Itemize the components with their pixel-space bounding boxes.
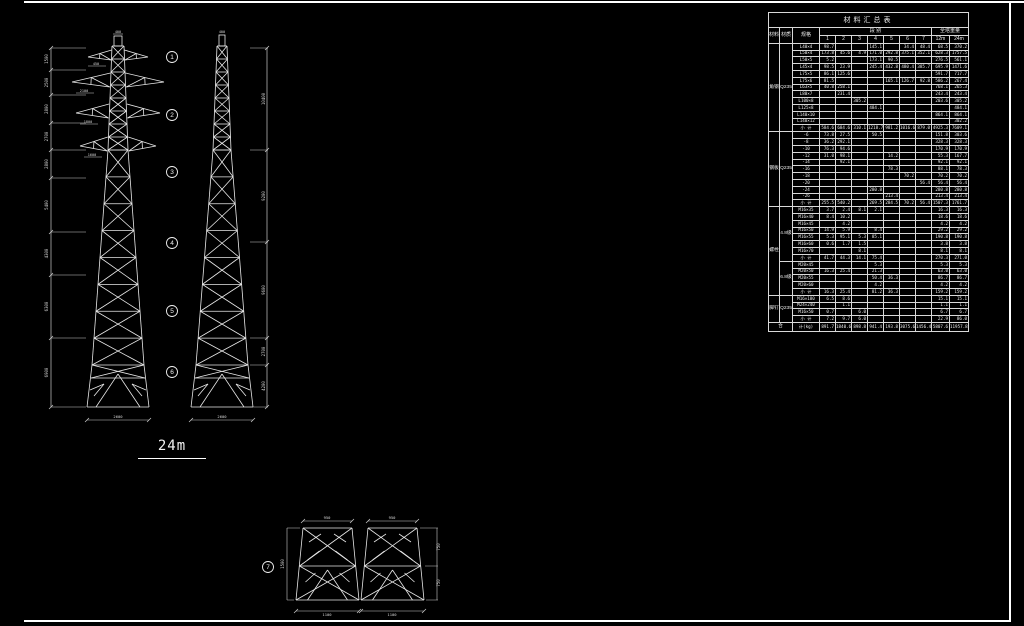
value-cell bbox=[868, 302, 884, 309]
value-cell: 7609.1 bbox=[950, 125, 969, 132]
spec-cell: L125×8 bbox=[793, 105, 820, 112]
value-cell bbox=[916, 91, 932, 98]
value-cell bbox=[884, 84, 900, 91]
leg-detail-marker: 7 bbox=[263, 562, 274, 573]
table-row: M20×5550.436.386.786.7 bbox=[769, 275, 969, 282]
value-cell bbox=[900, 145, 916, 152]
value-cell bbox=[852, 288, 868, 295]
value-cell: 6.7 bbox=[950, 309, 969, 316]
value-cell: 86.7 bbox=[950, 275, 969, 282]
value-cell bbox=[836, 166, 852, 173]
value-cell bbox=[852, 227, 868, 234]
value-cell bbox=[836, 98, 852, 105]
value-cell bbox=[884, 248, 900, 255]
value-cell: 1.1 bbox=[950, 302, 969, 309]
spec-cell: -8 bbox=[793, 139, 820, 146]
value-cell: 628.3 bbox=[932, 50, 950, 57]
value-cell bbox=[900, 159, 916, 166]
value-cell: 284.5 bbox=[884, 200, 900, 207]
value-cell bbox=[884, 254, 900, 261]
value-cell bbox=[820, 118, 836, 125]
material-summary-table: 材料汇总表材料材质规格段 别全塔重量123456712m24m角钢Q235L40… bbox=[768, 12, 968, 332]
value-cell bbox=[932, 105, 950, 112]
value-cell: 56.4 bbox=[950, 179, 969, 186]
spec-cell: -24 bbox=[793, 186, 820, 193]
table-row: -1492.192.192.1 bbox=[769, 159, 969, 166]
value-cell bbox=[884, 316, 900, 323]
value-cell: 25.4 bbox=[836, 268, 852, 275]
value-cell bbox=[884, 118, 900, 125]
value-cell bbox=[916, 152, 932, 159]
svg-text:1500: 1500 bbox=[44, 54, 49, 64]
value-cell bbox=[820, 302, 836, 309]
value-cell: 165.1 bbox=[884, 77, 900, 84]
grade-label: Q235 bbox=[780, 295, 793, 322]
value-cell bbox=[884, 111, 900, 118]
svg-text:2600: 2600 bbox=[113, 414, 123, 419]
value-cell: 213.4 bbox=[884, 193, 900, 200]
value-cell: 1.5 bbox=[852, 241, 868, 248]
value-cell: 70.2 bbox=[900, 200, 916, 207]
value-cell: 484.1 bbox=[950, 105, 969, 112]
spec-cell: M16×35 bbox=[793, 207, 820, 214]
value-cell: 4.2 bbox=[932, 220, 950, 227]
value-cell: 9.7 bbox=[836, 316, 852, 323]
value-cell bbox=[836, 193, 852, 200]
spec-cell: M16×55 bbox=[793, 234, 820, 241]
section-marker: 3 bbox=[167, 167, 178, 178]
value-cell bbox=[900, 288, 916, 295]
value-cell: 768.1 bbox=[932, 84, 950, 91]
value-cell bbox=[916, 234, 932, 241]
value-cell: 0.7 bbox=[820, 309, 836, 316]
section-marker: 6 bbox=[167, 367, 178, 378]
svg-text:400: 400 bbox=[219, 30, 225, 34]
svg-text:6900: 6900 bbox=[44, 367, 49, 377]
table-row: M16×5014.95.98.429.229.2 bbox=[769, 227, 969, 234]
spec-cell: M16×50 bbox=[793, 227, 820, 234]
value-cell: 8.1 bbox=[950, 248, 969, 255]
value-cell bbox=[852, 268, 868, 275]
svg-text:4200: 4200 bbox=[261, 381, 266, 391]
table-row: M16×500.76.06.76.7 bbox=[769, 309, 969, 316]
value-cell bbox=[820, 275, 836, 282]
material-table-grid: 材料汇总表材料材质规格段 别全塔重量123456712m24m角钢Q235L40… bbox=[768, 12, 969, 332]
value-cell bbox=[900, 186, 916, 193]
table-header-row: 材料材质规格段 别全塔重量 bbox=[769, 28, 969, 36]
table-row: M16×408.410.218.618.6 bbox=[769, 214, 969, 221]
value-cell bbox=[852, 159, 868, 166]
value-cell bbox=[820, 111, 836, 118]
value-cell: 190.8 bbox=[950, 234, 969, 241]
value-cell: 34.4 bbox=[900, 43, 916, 50]
value-cell bbox=[852, 111, 868, 118]
value-cell: 23.9 bbox=[836, 64, 852, 71]
value-cell: 484.1 bbox=[868, 105, 884, 112]
value-cell: 561.1 bbox=[950, 57, 969, 64]
value-cell: 190.8 bbox=[932, 234, 950, 241]
spec-cell: M20×60 bbox=[793, 282, 820, 289]
value-cell: 3.7 bbox=[820, 207, 836, 214]
spec-cell: M16×45 bbox=[793, 220, 820, 227]
value-cell: 1757.5 bbox=[950, 50, 969, 57]
value-cell: 231.4 bbox=[836, 91, 852, 98]
value-cell: 879.0 bbox=[916, 125, 932, 132]
spec-cell: -16 bbox=[793, 166, 820, 173]
value-cell: 5.2 bbox=[820, 57, 836, 64]
grade-label: Q235 bbox=[780, 132, 793, 207]
svg-text:2700: 2700 bbox=[44, 131, 49, 141]
value-cell: 3.8 bbox=[932, 241, 950, 248]
value-cell: 8.4 bbox=[868, 227, 884, 234]
svg-text:2: 2 bbox=[170, 112, 174, 119]
value-cell bbox=[836, 282, 852, 289]
value-cell bbox=[836, 186, 852, 193]
value-cell: 370.2 bbox=[950, 43, 969, 50]
value-cell: 78.3 bbox=[884, 166, 900, 173]
value-cell bbox=[852, 261, 868, 268]
svg-text:450: 450 bbox=[93, 62, 99, 66]
value-cell bbox=[900, 261, 916, 268]
value-cell: 16.3 bbox=[820, 268, 836, 275]
value-cell bbox=[916, 159, 932, 166]
value-cell: 170.9 bbox=[950, 145, 969, 152]
value-cell: 385.7 bbox=[916, 64, 932, 71]
value-cell bbox=[900, 57, 916, 64]
spec-cell: -14 bbox=[793, 159, 820, 166]
table-row: 小 计41.744.314.175.4270.3271.0 bbox=[769, 254, 969, 261]
value-cell: 167.7 bbox=[950, 152, 969, 159]
svg-text:1800: 1800 bbox=[84, 120, 92, 124]
svg-text:6: 6 bbox=[170, 369, 174, 376]
value-cell: 16.3 bbox=[820, 288, 836, 295]
value-cell bbox=[868, 179, 884, 186]
value-cell bbox=[868, 316, 884, 323]
value-cell: 0.6 bbox=[820, 241, 836, 248]
value-cell: 8.6 bbox=[836, 295, 852, 302]
value-cell bbox=[900, 111, 916, 118]
value-cell bbox=[820, 282, 836, 289]
value-cell: 292.8 bbox=[884, 50, 900, 57]
value-cell: 171.0 bbox=[868, 50, 884, 57]
value-cell: 5.3 bbox=[852, 234, 868, 241]
value-cell bbox=[852, 295, 868, 302]
value-cell bbox=[884, 295, 900, 302]
value-cell: 73.8 bbox=[820, 132, 836, 139]
value-cell bbox=[900, 268, 916, 275]
value-cell: 265.3 bbox=[950, 84, 969, 91]
value-cell bbox=[868, 241, 884, 248]
value-cell: 63.0 bbox=[950, 268, 969, 275]
value-cell bbox=[916, 220, 932, 227]
value-cell bbox=[852, 186, 868, 193]
value-cell bbox=[868, 139, 884, 146]
value-cell: 85.1 bbox=[868, 234, 884, 241]
value-cell: 267.4 bbox=[950, 77, 969, 84]
value-cell: 18.6 bbox=[932, 214, 950, 221]
value-cell: 56.4 bbox=[916, 179, 932, 186]
value-cell bbox=[916, 288, 932, 295]
value-cell: 8.1 bbox=[932, 248, 950, 255]
table-row: 脚钉Q235M16×1806.58.615.115.1 bbox=[769, 295, 969, 302]
value-cell bbox=[884, 214, 900, 221]
svg-text:1500: 1500 bbox=[280, 559, 285, 569]
value-cell bbox=[884, 43, 900, 50]
value-cell bbox=[884, 227, 900, 234]
table-row: L125×8484.1484.1 bbox=[769, 105, 969, 112]
value-cell: 159.2 bbox=[932, 288, 950, 295]
value-cell bbox=[884, 241, 900, 248]
value-cell bbox=[900, 214, 916, 221]
value-cell bbox=[820, 105, 836, 112]
value-cell: 375.1 bbox=[900, 50, 916, 57]
value-cell: 270.3 bbox=[932, 254, 950, 261]
svg-text:5400: 5400 bbox=[44, 200, 49, 210]
value-cell bbox=[820, 179, 836, 186]
value-cell: 36.3 bbox=[884, 275, 900, 282]
value-cell bbox=[884, 145, 900, 152]
value-cell bbox=[884, 98, 900, 105]
value-cell bbox=[836, 275, 852, 282]
value-cell: 98.1 bbox=[836, 152, 852, 159]
value-cell: 203.6 bbox=[932, 98, 950, 105]
spec-cell: L75×5 bbox=[793, 70, 820, 77]
value-cell bbox=[852, 275, 868, 282]
table-row: 小 计7.29.76.022.986.0 bbox=[769, 316, 969, 323]
svg-text:1: 1 bbox=[170, 54, 174, 61]
value-cell: 16.3 bbox=[932, 207, 950, 214]
table-row: -24280.8280.8280.8 bbox=[769, 186, 969, 193]
value-cell: 5.3 bbox=[820, 234, 836, 241]
table-row: M24×2401.11.11.1 bbox=[769, 302, 969, 309]
material-group-label: 螺栓 bbox=[769, 207, 780, 296]
value-cell: 255.5 bbox=[820, 200, 836, 207]
value-cell bbox=[852, 70, 868, 77]
table-row: M20×604.24.24.2 bbox=[769, 282, 969, 289]
spec-cell: 小 计 bbox=[793, 316, 820, 323]
value-cell bbox=[900, 254, 916, 261]
svg-text:1100: 1100 bbox=[387, 612, 397, 617]
value-cell: 88.1 bbox=[932, 166, 950, 173]
value-cell: 95.1 bbox=[836, 234, 852, 241]
value-cell bbox=[868, 70, 884, 77]
value-cell: 90.5 bbox=[884, 57, 900, 64]
value-cell: 27.5 bbox=[836, 132, 852, 139]
value-cell bbox=[916, 139, 932, 146]
value-cell: 303.6 bbox=[950, 132, 969, 139]
value-cell: 40.8 bbox=[820, 84, 836, 91]
value-cell bbox=[836, 43, 852, 50]
table-row: -1231.098.114.255.3167.7 bbox=[769, 152, 969, 159]
value-cell: 591.7 bbox=[932, 70, 950, 77]
value-cell bbox=[916, 118, 932, 125]
table-row: L140×10864.1864.1 bbox=[769, 111, 969, 118]
value-cell: 305.2 bbox=[852, 98, 868, 105]
value-cell bbox=[884, 139, 900, 146]
spec-cell: 小 计 bbox=[793, 254, 820, 261]
svg-text:1600: 1600 bbox=[88, 153, 96, 157]
value-cell bbox=[868, 118, 884, 125]
value-cell: 4.2 bbox=[932, 282, 950, 289]
value-cell bbox=[916, 145, 932, 152]
svg-text:4: 4 bbox=[170, 240, 174, 247]
svg-text:2500: 2500 bbox=[44, 77, 49, 87]
spec-cell: M20×45 bbox=[793, 261, 820, 268]
spec-cell: 小 计 bbox=[793, 125, 820, 132]
value-cell: 302.2 bbox=[950, 118, 969, 125]
value-cell bbox=[852, 200, 868, 207]
svg-text:6300: 6300 bbox=[44, 301, 49, 311]
value-cell bbox=[852, 132, 868, 139]
value-cell: 41.7 bbox=[820, 254, 836, 261]
value-cell: 125.6 bbox=[836, 70, 852, 77]
value-cell bbox=[916, 254, 932, 261]
value-cell bbox=[916, 193, 932, 200]
value-cell bbox=[836, 77, 852, 84]
value-cell: 173.8 bbox=[820, 50, 836, 57]
value-cell bbox=[884, 105, 900, 112]
value-cell: 78.3 bbox=[950, 166, 969, 173]
value-cell: 31.0 bbox=[820, 152, 836, 159]
value-cell: 864.1 bbox=[932, 111, 950, 118]
value-cell: 4925.3 bbox=[932, 125, 950, 132]
value-cell: 213.4 bbox=[950, 193, 969, 200]
value-cell bbox=[916, 84, 932, 91]
value-cell: 81.2 bbox=[868, 288, 884, 295]
value-cell bbox=[884, 282, 900, 289]
value-cell: 8.1 bbox=[852, 207, 868, 214]
grade-label: 6.8级 bbox=[780, 261, 793, 295]
svg-text:400: 400 bbox=[115, 30, 121, 34]
value-cell: 586.2 bbox=[932, 77, 950, 84]
value-cell: 70.2 bbox=[900, 173, 916, 180]
spec-cell: L63×5 bbox=[793, 84, 820, 91]
value-cell: 213.4 bbox=[932, 193, 950, 200]
svg-text:2800: 2800 bbox=[44, 159, 49, 169]
value-cell: 2.1 bbox=[868, 207, 884, 214]
value-cell bbox=[868, 309, 884, 316]
value-cell bbox=[820, 193, 836, 200]
value-cell: 92.1 bbox=[950, 159, 969, 166]
value-cell: 269.5 bbox=[868, 200, 884, 207]
value-cell bbox=[852, 139, 868, 146]
value-cell bbox=[900, 84, 916, 91]
value-cell: 3.8 bbox=[950, 241, 969, 248]
value-cell: 243.4 bbox=[932, 91, 950, 98]
spec-cell: -20 bbox=[793, 179, 820, 186]
value-cell: 15.1 bbox=[932, 295, 950, 302]
value-cell bbox=[884, 234, 900, 241]
value-cell bbox=[852, 43, 868, 50]
value-cell bbox=[916, 132, 932, 139]
table-row: L75×681.5165.1126.792.8586.2267.4 bbox=[769, 77, 969, 84]
value-cell: 695.9 bbox=[932, 64, 950, 71]
value-cell: 4.2 bbox=[950, 220, 969, 227]
value-cell: 151.8 bbox=[932, 132, 950, 139]
table-row: -1870.270.270.2 bbox=[769, 173, 969, 180]
value-cell bbox=[884, 220, 900, 227]
value-cell bbox=[900, 241, 916, 248]
table-row: -1076.394.6170.9170.9 bbox=[769, 145, 969, 152]
value-cell: 280.8 bbox=[950, 186, 969, 193]
svg-text:2800: 2800 bbox=[44, 104, 49, 114]
value-cell: 86.7 bbox=[932, 275, 950, 282]
value-cell: 92.1 bbox=[836, 159, 852, 166]
table-row: 螺栓4.8级M16×353.72.48.12.116.316.3 bbox=[769, 207, 969, 214]
value-cell: 14.2 bbox=[884, 152, 900, 159]
value-cell: 126.7 bbox=[900, 77, 916, 84]
value-cell: 145.1 bbox=[868, 43, 884, 50]
value-cell: 717.7 bbox=[950, 70, 969, 77]
value-cell: 21.3 bbox=[868, 268, 884, 275]
value-cell: 25.4 bbox=[836, 288, 852, 295]
svg-text:7: 7 bbox=[266, 564, 270, 571]
table-row: M16×454.24.24.2 bbox=[769, 220, 969, 227]
value-cell: 280.8 bbox=[932, 186, 950, 193]
value-cell: 280.8 bbox=[868, 186, 884, 193]
value-cell bbox=[868, 214, 884, 221]
value-cell bbox=[916, 186, 932, 193]
value-cell bbox=[900, 98, 916, 105]
value-cell bbox=[900, 295, 916, 302]
table-row: M20×5016.325.421.363.063.0 bbox=[769, 268, 969, 275]
value-cell bbox=[836, 105, 852, 112]
value-cell bbox=[836, 179, 852, 186]
svg-text:2700: 2700 bbox=[261, 346, 266, 356]
value-cell: 10.2 bbox=[836, 214, 852, 221]
table-row: L75×586.1125.6591.7717.7 bbox=[769, 70, 969, 77]
value-cell bbox=[884, 268, 900, 275]
value-cell: 1218.7 bbox=[868, 125, 884, 132]
section-marker: 5 bbox=[167, 306, 178, 317]
table-row: M16×555.395.15.385.1190.8190.8 bbox=[769, 234, 969, 241]
value-cell bbox=[884, 302, 900, 309]
table-row: -1678.388.178.3 bbox=[769, 166, 969, 173]
value-cell bbox=[884, 186, 900, 193]
value-cell bbox=[916, 261, 932, 268]
value-cell: 68.5 bbox=[932, 43, 950, 50]
spec-cell: -12 bbox=[793, 152, 820, 159]
value-cell: 44.3 bbox=[836, 254, 852, 261]
value-cell bbox=[820, 248, 836, 255]
value-cell bbox=[852, 173, 868, 180]
value-cell: 8.4 bbox=[820, 214, 836, 221]
spec-cell: M16×40 bbox=[793, 214, 820, 221]
value-cell bbox=[916, 111, 932, 118]
svg-text:950: 950 bbox=[324, 515, 332, 520]
value-cell: 5.3 bbox=[868, 261, 884, 268]
value-cell bbox=[884, 159, 900, 166]
value-cell bbox=[900, 152, 916, 159]
value-cell bbox=[852, 145, 868, 152]
svg-text:3: 3 bbox=[170, 169, 174, 176]
table-row: 小 计584.6684.6310.11218.7981.21016.6879.0… bbox=[769, 125, 969, 132]
value-cell: 276.5 bbox=[932, 57, 950, 64]
value-cell bbox=[900, 282, 916, 289]
value-cell bbox=[852, 64, 868, 71]
value-cell bbox=[916, 70, 932, 77]
material-group-label: 脚钉 bbox=[769, 295, 780, 322]
svg-text:750: 750 bbox=[436, 579, 441, 587]
value-cell: 6.5 bbox=[820, 295, 836, 302]
value-cell bbox=[900, 118, 916, 125]
value-cell bbox=[900, 227, 916, 234]
value-cell bbox=[852, 57, 868, 64]
value-cell bbox=[868, 248, 884, 255]
table-row: 小 计16.325.481.236.3159.2159.2 bbox=[769, 288, 969, 295]
value-cell bbox=[868, 84, 884, 91]
spec-cell: -18 bbox=[793, 173, 820, 180]
